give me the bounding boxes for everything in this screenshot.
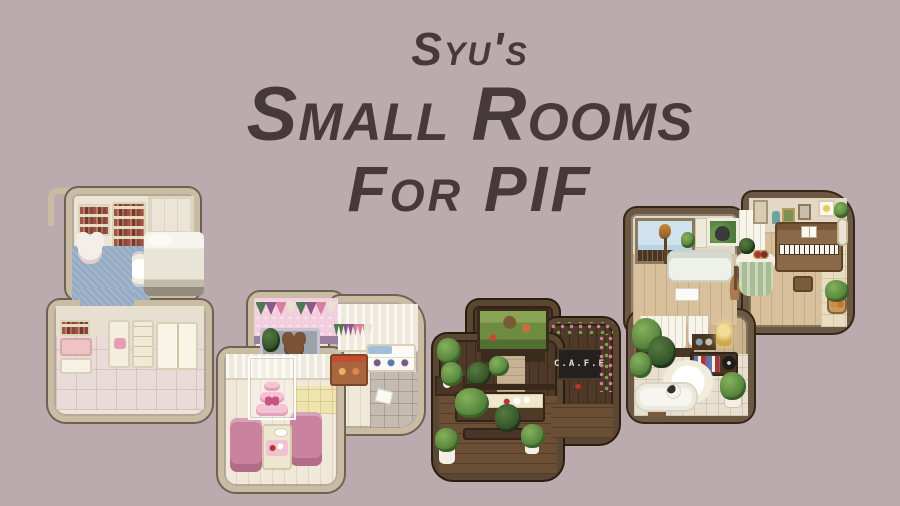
wardrobe: [156, 322, 198, 370]
cafe-floor-right: [551, 404, 613, 438]
tablecloth: [739, 262, 773, 296]
room-showcase-poster: Syu's Small Rooms For PIF: [0, 0, 900, 506]
piano-keys: [779, 244, 839, 255]
plant-icon: [489, 356, 509, 376]
blue-pastry-tray: [368, 346, 392, 354]
plush-bear: [78, 236, 102, 264]
record-disc-icon: [722, 356, 736, 370]
guitar-icon: [727, 266, 742, 300]
pink-dresser: [60, 338, 92, 356]
floor-book: [675, 288, 699, 301]
sheet-music: [801, 226, 817, 238]
standing-mirror: [837, 218, 848, 246]
plant-icon: [630, 352, 652, 378]
fruit-bowl: [753, 250, 769, 259]
cat-in-tub-icon: [666, 384, 681, 399]
room-bakery: [218, 292, 422, 492]
white-sofa: [667, 250, 733, 282]
pink-armchair: [290, 412, 322, 466]
dessert-plate: [274, 428, 288, 437]
gold-lamp-icon: [716, 322, 732, 346]
plant-icon: [262, 328, 280, 352]
plant-icon: [495, 404, 521, 432]
plant-icon: [648, 336, 676, 368]
potted-plant-icon: [720, 372, 746, 400]
dessert-tray: [266, 440, 288, 456]
jar-shelf: [692, 334, 716, 350]
wood-display-case: [330, 354, 368, 386]
hanging-plant-icon: [437, 338, 461, 364]
room-bedroom: [48, 188, 212, 434]
balcony-plant-icon: [681, 232, 695, 248]
aquarium: [477, 308, 549, 352]
picture-frame: [798, 204, 811, 220]
room-cafe: C.A.F.E: [433, 300, 619, 480]
plant-icon: [521, 424, 545, 448]
flower-vine: [597, 334, 613, 392]
bed-pillow: [148, 234, 172, 246]
flower-vine: [549, 322, 613, 334]
bookshelf-icon: [78, 204, 110, 236]
wall-clock-frame: [753, 200, 768, 224]
large-plant-icon: [455, 388, 489, 418]
pink-armchair: [230, 418, 262, 472]
bench: [463, 428, 525, 440]
cream-cabinet: [60, 358, 92, 374]
corner-plant-icon: [825, 280, 849, 302]
pink-basket: [114, 338, 126, 349]
cake-bow: [265, 396, 279, 406]
gold-framed-picture: [782, 208, 795, 223]
bathtub: [634, 382, 698, 412]
bookshelf-icon: [112, 202, 146, 248]
title-line-2: Small Rooms: [230, 77, 710, 153]
plant-icon: [435, 428, 459, 452]
cake-tier: [264, 380, 280, 391]
lamp-picture: [818, 200, 835, 217]
shelf-plant-icon: [834, 202, 849, 218]
title-line-1: Syu's: [230, 24, 710, 75]
red-berry-dot: [575, 384, 581, 389]
wall-pillar: [695, 218, 707, 248]
drawer-tower: [132, 320, 154, 368]
plant-icon: [441, 362, 463, 386]
room-bath: [628, 310, 754, 422]
cat-in-window-icon: [715, 226, 730, 241]
small-bookshelf-icon: [60, 320, 90, 336]
piano-stool: [793, 276, 813, 292]
bedroom-window: [148, 196, 194, 234]
yellow-accent-tile: [296, 386, 336, 414]
plant-icon: [467, 362, 491, 386]
